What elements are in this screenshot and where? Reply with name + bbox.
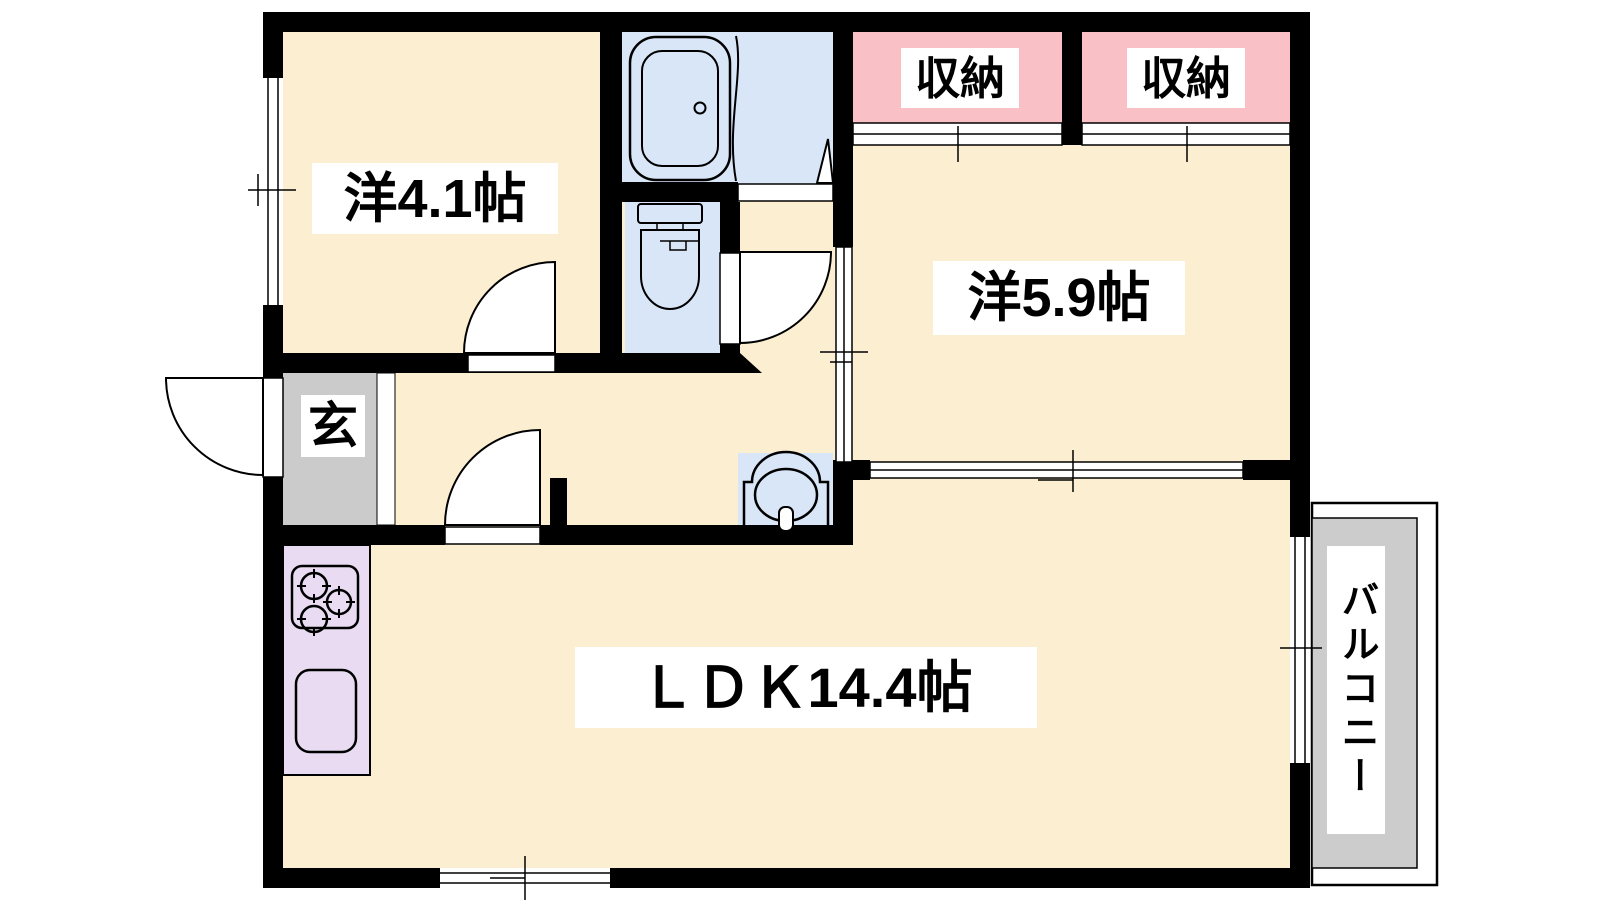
wall-hall-ldk-left [283, 525, 445, 545]
room59-label: 洋5.9帖 [933, 261, 1185, 335]
wall-room41-bottom [283, 353, 620, 373]
wall-closet-divider [1062, 32, 1082, 145]
wall-bottom [263, 868, 1310, 888]
wall-bath-closet [833, 32, 853, 247]
wall-room41-bath [600, 32, 622, 373]
closet-left-label: 収納 [901, 48, 1019, 108]
wall-stub [550, 478, 567, 527]
wall-bath-bottom [600, 182, 738, 202]
floor-areas [283, 32, 1290, 868]
balcony-label: バルコニー [1327, 546, 1385, 834]
ldk-label: ＬＤＫ14.4帖 [575, 647, 1037, 728]
genkan-label: 玄 [301, 395, 365, 457]
genkan-step [377, 373, 395, 525]
entrance-door-icon [166, 378, 283, 477]
wall-top [263, 12, 1310, 32]
toilet-floor [625, 202, 720, 353]
wall-toilet-bottom [600, 353, 740, 373]
wall-hall-ldk-right [540, 525, 853, 545]
room41-label: 洋4.1帖 [312, 163, 558, 234]
closet-right-label: 収納 [1127, 48, 1245, 108]
floorplan: 洋4.1帖 洋5.9帖 ＬＤＫ14.4帖 収納 収納 玄 バルコニー [0, 0, 1600, 900]
wall-room59-ldk-right [1243, 460, 1290, 480]
